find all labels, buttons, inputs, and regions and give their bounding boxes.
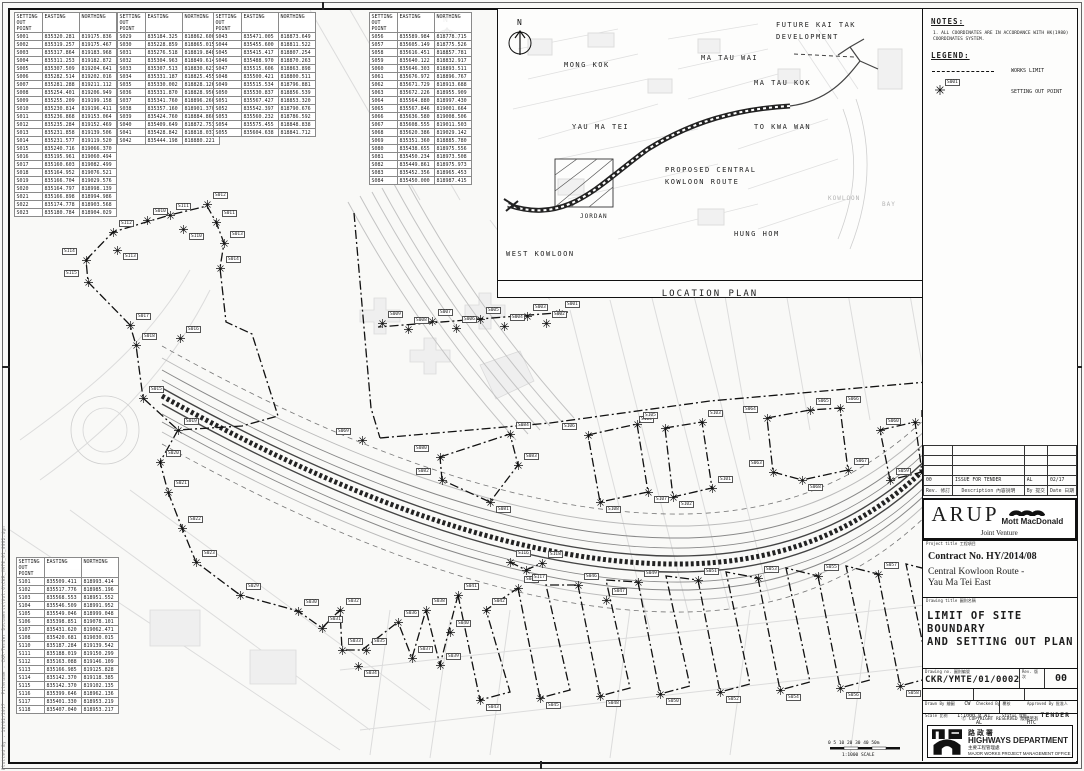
joint-venture-label: Joint Venture — [924, 529, 1076, 537]
setting-out-point-label: S080 — [414, 445, 429, 452]
setting-out-point-label: S082 — [416, 468, 431, 475]
setting-out-point-label: S118 — [548, 551, 563, 558]
setting-out-point-label: S068 — [808, 484, 823, 491]
setting-out-point-marker — [776, 686, 785, 695]
setting-out-point-marker — [476, 315, 485, 324]
fold-mark — [540, 761, 542, 769]
setting-out-point-label: S008 — [414, 317, 429, 324]
rev-value: 00 — [1045, 669, 1077, 688]
setting-out-point-marker — [220, 239, 229, 248]
setting-out-point-label: S059 — [896, 468, 911, 475]
setting-out-point-label: S054 — [786, 694, 801, 701]
setting-out-point-label: S012 — [213, 192, 228, 199]
setting-out-point-label: S046 — [584, 573, 599, 580]
setting-out-point-label: S063 — [749, 460, 764, 467]
revision-table: 00 ISSUE FOR TENDER AL 02/17 Rev. 修訂 Des… — [923, 445, 1077, 496]
plot-info: Plotted By : 16/02/2017 Filename : CKR-T… — [1, 526, 6, 770]
setting-out-point-label: S037 — [418, 646, 433, 653]
setting-out-point-marker — [446, 628, 455, 637]
setting-out-point-label: S011 — [222, 210, 237, 217]
setting-out-point-marker — [661, 424, 670, 433]
setting-out-point-marker — [633, 420, 642, 429]
revision-by: AL — [1024, 476, 1047, 486]
drawing-title-line2: AND SETTING OUT PLAN — [923, 636, 1077, 649]
setting-out-point-label: S035 — [372, 638, 387, 645]
setting-out-point-label: S021 — [174, 480, 189, 487]
setting-out-point-label: S023 — [202, 550, 217, 557]
setting-out-point-marker — [84, 278, 93, 287]
highways-department-logo — [932, 729, 962, 755]
setting-out-point-marker — [644, 488, 653, 497]
setting-out-point-marker — [698, 418, 707, 427]
setting-out-point-label: S064 — [743, 406, 758, 413]
setting-out-point-marker — [454, 591, 463, 600]
setting-out-point-label: S057 — [884, 562, 899, 569]
setting-out-point-label: S069 — [336, 428, 351, 435]
setting-out-point-marker — [500, 322, 509, 331]
setting-out-point-label: S101 — [718, 476, 733, 483]
setting-out-point-legend-label: SETTING OUT POINT — [1011, 89, 1062, 95]
setting-out-point-marker — [358, 436, 367, 445]
setting-out-point-marker — [139, 394, 148, 403]
setting-out-point-label: S106 — [562, 423, 577, 430]
project-name-line2: Yau Ma Tei East — [923, 577, 1077, 588]
setting-out-points-layer: S001S002S003S004S005S006S007S008S009S010… — [10, 10, 1074, 760]
setting-out-point-marker — [574, 581, 583, 590]
setting-out-point-marker — [236, 591, 245, 600]
setting-out-point-label: S048 — [606, 700, 621, 707]
setting-out-point-label: S002 — [552, 311, 567, 318]
setting-out-point-label: S031 — [328, 616, 343, 623]
setting-out-point-marker — [896, 682, 905, 691]
drawing-number: CKR/YMTE/01/0002 — [925, 675, 1017, 685]
fold-mark — [2, 366, 10, 368]
setting-out-point-marker — [179, 225, 188, 234]
setting-out-point-label: S018 — [142, 333, 157, 340]
people-row: Drawn By 繪圖 CW Checked By 覆核 AL Approved… — [923, 688, 1077, 700]
setting-out-point-marker — [876, 426, 885, 435]
setting-out-point-label: S015 — [149, 386, 164, 393]
setting-out-point-label: S032 — [346, 598, 361, 605]
setting-out-point-marker — [82, 256, 91, 265]
setting-out-point-marker — [338, 646, 347, 655]
revision-rev: 00 — [924, 476, 953, 486]
setting-out-point-marker — [408, 654, 417, 663]
setting-out-point-marker — [404, 325, 413, 334]
office-name-en: MAJOR WORKS PROJECT MANAGEMENT OFFICE — [968, 751, 1071, 756]
setting-out-point-label: S083 — [524, 453, 539, 460]
setting-out-point-label: S029 — [246, 583, 261, 590]
setting-out-point-label: S040 — [456, 620, 471, 627]
setting-out-point-marker — [754, 574, 763, 583]
setting-out-point-label: S039 — [446, 653, 461, 660]
setting-out-point-marker — [506, 558, 515, 567]
project-name-line1: Central Kowloon Route - — [923, 562, 1077, 577]
setting-out-point-label: S038 — [432, 598, 447, 605]
setting-out-point-marker — [886, 476, 895, 485]
setting-out-point-label: S034 — [364, 670, 379, 677]
setting-out-point-marker — [132, 341, 141, 350]
setting-out-point-marker — [428, 317, 437, 326]
setting-out-point-marker — [216, 264, 225, 273]
setting-out-point-marker — [109, 228, 118, 237]
setting-out-point-marker — [806, 406, 815, 415]
drawing-number-row: Drawing no. 圖則編號 CKR/YMTE/01/0002 Rev. 版… — [923, 668, 1077, 688]
sample-point-label: S001 — [945, 79, 960, 86]
setting-out-point-label: S043 — [486, 704, 501, 711]
setting-out-point-label: S102 — [679, 501, 694, 508]
project-title-section: Project title 工程項目 Contract No. HY/2014/… — [923, 540, 1077, 597]
setting-out-point-marker — [694, 576, 703, 585]
setting-out-point-label: S067 — [854, 458, 869, 465]
revision-header-date: Date 日期 — [1047, 486, 1076, 496]
setting-out-point-label: S111 — [176, 203, 191, 210]
setting-out-point-marker — [126, 321, 135, 330]
setting-out-point-label: S115 — [64, 270, 79, 277]
setting-out-point-marker — [522, 566, 531, 575]
setting-out-point-label: S020 — [166, 450, 181, 457]
mott-macdonald-logo-icon — [1009, 503, 1045, 516]
copyright-line: Ⓒ COPYRIGHT RESERVED 版權所有 — [923, 713, 1077, 723]
setting-out-point-marker — [514, 584, 523, 593]
setting-out-point-marker — [354, 662, 363, 671]
setting-out-point-marker — [192, 558, 201, 567]
setting-out-point-label: S060 — [886, 418, 901, 425]
setting-out-point-marker — [336, 606, 345, 615]
setting-out-point-label: S006 — [462, 316, 477, 323]
setting-out-point-label: S022 — [188, 516, 203, 523]
setting-out-point-marker — [486, 498, 495, 507]
revision-header-by: By 提交 — [1024, 486, 1047, 496]
setting-out-point-label: S084 — [516, 422, 531, 429]
revision-header-row: Rev. 修訂 Description 內容說明 By 提交 Date 日期 — [924, 486, 1077, 496]
works-limit-label: WORKS LIMIT — [1011, 68, 1044, 74]
arup-logo: ARUP — [932, 502, 1000, 527]
setting-out-point-marker — [378, 319, 387, 328]
setting-out-point-label: S050 — [666, 698, 681, 705]
setting-out-point-marker — [716, 688, 725, 697]
setting-out-point-label: S116 — [516, 550, 531, 557]
setting-out-point-label: S066 — [846, 396, 861, 403]
setting-out-point-label: S049 — [644, 570, 659, 577]
setting-out-point-label: S081 — [496, 506, 511, 513]
setting-out-point-label: S017 — [136, 313, 151, 320]
setting-out-point-label: S108 — [606, 506, 621, 513]
setting-out-point-label: S058 — [906, 690, 921, 697]
setting-out-point-marker — [143, 216, 152, 225]
setting-out-point-marker — [318, 624, 327, 633]
setting-out-point-marker — [538, 559, 547, 568]
setting-out-point-marker — [476, 696, 485, 705]
works-limit-sample-line — [932, 71, 994, 72]
setting-out-point-label: S114 — [62, 248, 77, 255]
setting-out-point-marker — [422, 606, 431, 615]
setting-out-point-marker — [836, 404, 845, 413]
setting-out-point-label: S016 — [186, 326, 201, 333]
setting-out-point-marker — [542, 319, 551, 328]
setting-out-point-marker — [836, 684, 845, 693]
setting-out-point-marker — [844, 466, 853, 475]
setting-out-point-label: S014 — [226, 256, 241, 263]
setting-out-point-marker — [514, 461, 523, 470]
setting-out-point-marker — [436, 661, 445, 670]
setting-out-point-label: S005 — [486, 307, 501, 314]
setting-out-point-label: S105 — [643, 412, 658, 419]
setting-out-point-label: S053 — [764, 566, 779, 573]
setting-out-point-marker — [656, 690, 665, 699]
setting-out-point-label: S055 — [824, 564, 839, 571]
setting-out-point-marker — [602, 596, 611, 605]
note-1: 1. ALL COORDINATES ARE IN ACCORDANCE WIT… — [933, 31, 1069, 42]
rev-label: Rev. 版次 — [1022, 670, 1042, 679]
setting-out-point-marker — [178, 524, 187, 533]
setting-out-point-label: S056 — [846, 692, 861, 699]
setting-out-point-marker — [596, 692, 605, 701]
setting-out-point-marker — [911, 418, 920, 427]
setting-out-point-marker — [113, 246, 122, 255]
setting-out-point-marker — [166, 211, 175, 220]
setting-out-point-label: S036 — [404, 610, 419, 617]
notes-title: NOTES: — [931, 17, 964, 26]
drawing-title-section: Drawing title 圖則名稱 LIMIT OF SITE BOUNDAR… — [923, 597, 1077, 668]
setting-out-point-marker — [482, 606, 491, 615]
setting-out-point-label: S003 — [533, 304, 548, 311]
setting-out-point-marker — [634, 578, 643, 587]
drawing-sheet: N 0 5 10 20 30 40 50m 1:1000 SCALE S001S… — [0, 0, 1084, 771]
setting-out-point-label: S117 — [532, 574, 547, 581]
setting-out-point-label: S042 — [492, 598, 507, 605]
scale-status-row: Scale 比例 1:1000 @ A1 Status 狀態 TENDER — [923, 700, 1077, 713]
revision-description: ISSUE FOR TENDER — [953, 476, 1025, 486]
setting-out-point-label: S065 — [816, 398, 831, 405]
setting-out-point-marker — [798, 476, 807, 485]
setting-out-point-marker — [769, 468, 778, 477]
legend-title: LEGEND: — [931, 51, 970, 60]
setting-out-point-marker — [438, 476, 447, 485]
setting-out-point-marker — [814, 572, 823, 581]
revision-date: 02/17 — [1047, 476, 1076, 486]
setting-out-point-label: S045 — [546, 702, 561, 709]
revision-header-rev: Rev. 修訂 — [924, 486, 953, 496]
joint-venture-box: ARUP Mott MacDonald Joint Venture — [922, 498, 1078, 540]
setting-out-point-label: S041 — [464, 583, 479, 590]
setting-out-point-marker — [362, 646, 371, 655]
setting-out-point-marker — [536, 694, 545, 703]
department-name-en: HIGHWAYS DEPARTMENT — [968, 736, 1068, 745]
contract-number: Contract No. HY/2014/08 — [923, 547, 1077, 562]
setting-out-point-label: S033 — [348, 638, 363, 645]
drawing-title-line1: LIMIT OF SITE BOUNDARY — [923, 604, 1077, 636]
setting-out-point-label: S107 — [654, 496, 669, 503]
setting-out-point-marker — [212, 218, 221, 227]
setting-out-point-label: S051 — [704, 568, 719, 575]
setting-out-point-label: S004 — [510, 314, 525, 321]
setting-out-point-marker — [176, 334, 185, 343]
setting-out-point-marker — [164, 488, 173, 497]
setting-out-point-marker — [203, 200, 212, 209]
setting-out-point-marker — [294, 607, 303, 616]
setting-out-point-label: S030 — [304, 599, 319, 606]
setting-out-point-label: S052 — [726, 696, 741, 703]
setting-out-point-marker — [584, 431, 593, 440]
fold-mark — [322, 2, 324, 10]
setting-out-point-label: S113 — [123, 253, 138, 260]
setting-out-point-label: S103 — [708, 410, 723, 417]
setting-out-point-marker — [174, 426, 183, 435]
setting-out-point-label: S009 — [388, 311, 403, 318]
setting-out-point-marker — [452, 324, 461, 333]
revision-header-description: Description 內容說明 — [953, 486, 1025, 496]
setting-out-point-label: S047 — [612, 588, 627, 595]
setting-out-point-marker — [763, 414, 772, 423]
setting-out-point-marker — [669, 493, 678, 502]
side-panel: NOTES: 1. ALL COORDINATES ARE IN ACCORDA… — [922, 9, 1077, 761]
setting-out-point-marker — [394, 618, 403, 627]
setting-out-point-label: S110 — [189, 233, 204, 240]
mott-macdonald-logo-text: Mott MacDonald — [1002, 517, 1064, 526]
setting-out-point-marker — [596, 498, 605, 507]
setting-out-point-marker — [506, 430, 515, 439]
revision-row: 00 ISSUE FOR TENDER AL 02/17 — [924, 476, 1077, 486]
setting-out-point-label: S112 — [119, 220, 134, 227]
setting-out-point-label: S007 — [438, 309, 453, 316]
sample-point-marker — [935, 85, 945, 95]
setting-out-point-marker — [156, 458, 165, 467]
setting-out-point-label: S013 — [230, 231, 245, 238]
highways-department-box: 路 政 署 HIGHWAYS DEPARTMENT 主要工程管理處 MAJOR … — [927, 725, 1073, 758]
setting-out-point-marker — [708, 484, 717, 493]
setting-out-point-marker — [874, 570, 883, 579]
plot-info-line2: Filename : CKR-Tender Documents\Vol.6\CK… — [1, 526, 6, 695]
setting-out-point-label: S001 — [565, 301, 580, 308]
setting-out-point-label: S019 — [184, 418, 199, 425]
plot-info-line1: Plotted By : 16/02/2017 — [1, 703, 6, 770]
setting-out-point-marker — [436, 453, 445, 462]
